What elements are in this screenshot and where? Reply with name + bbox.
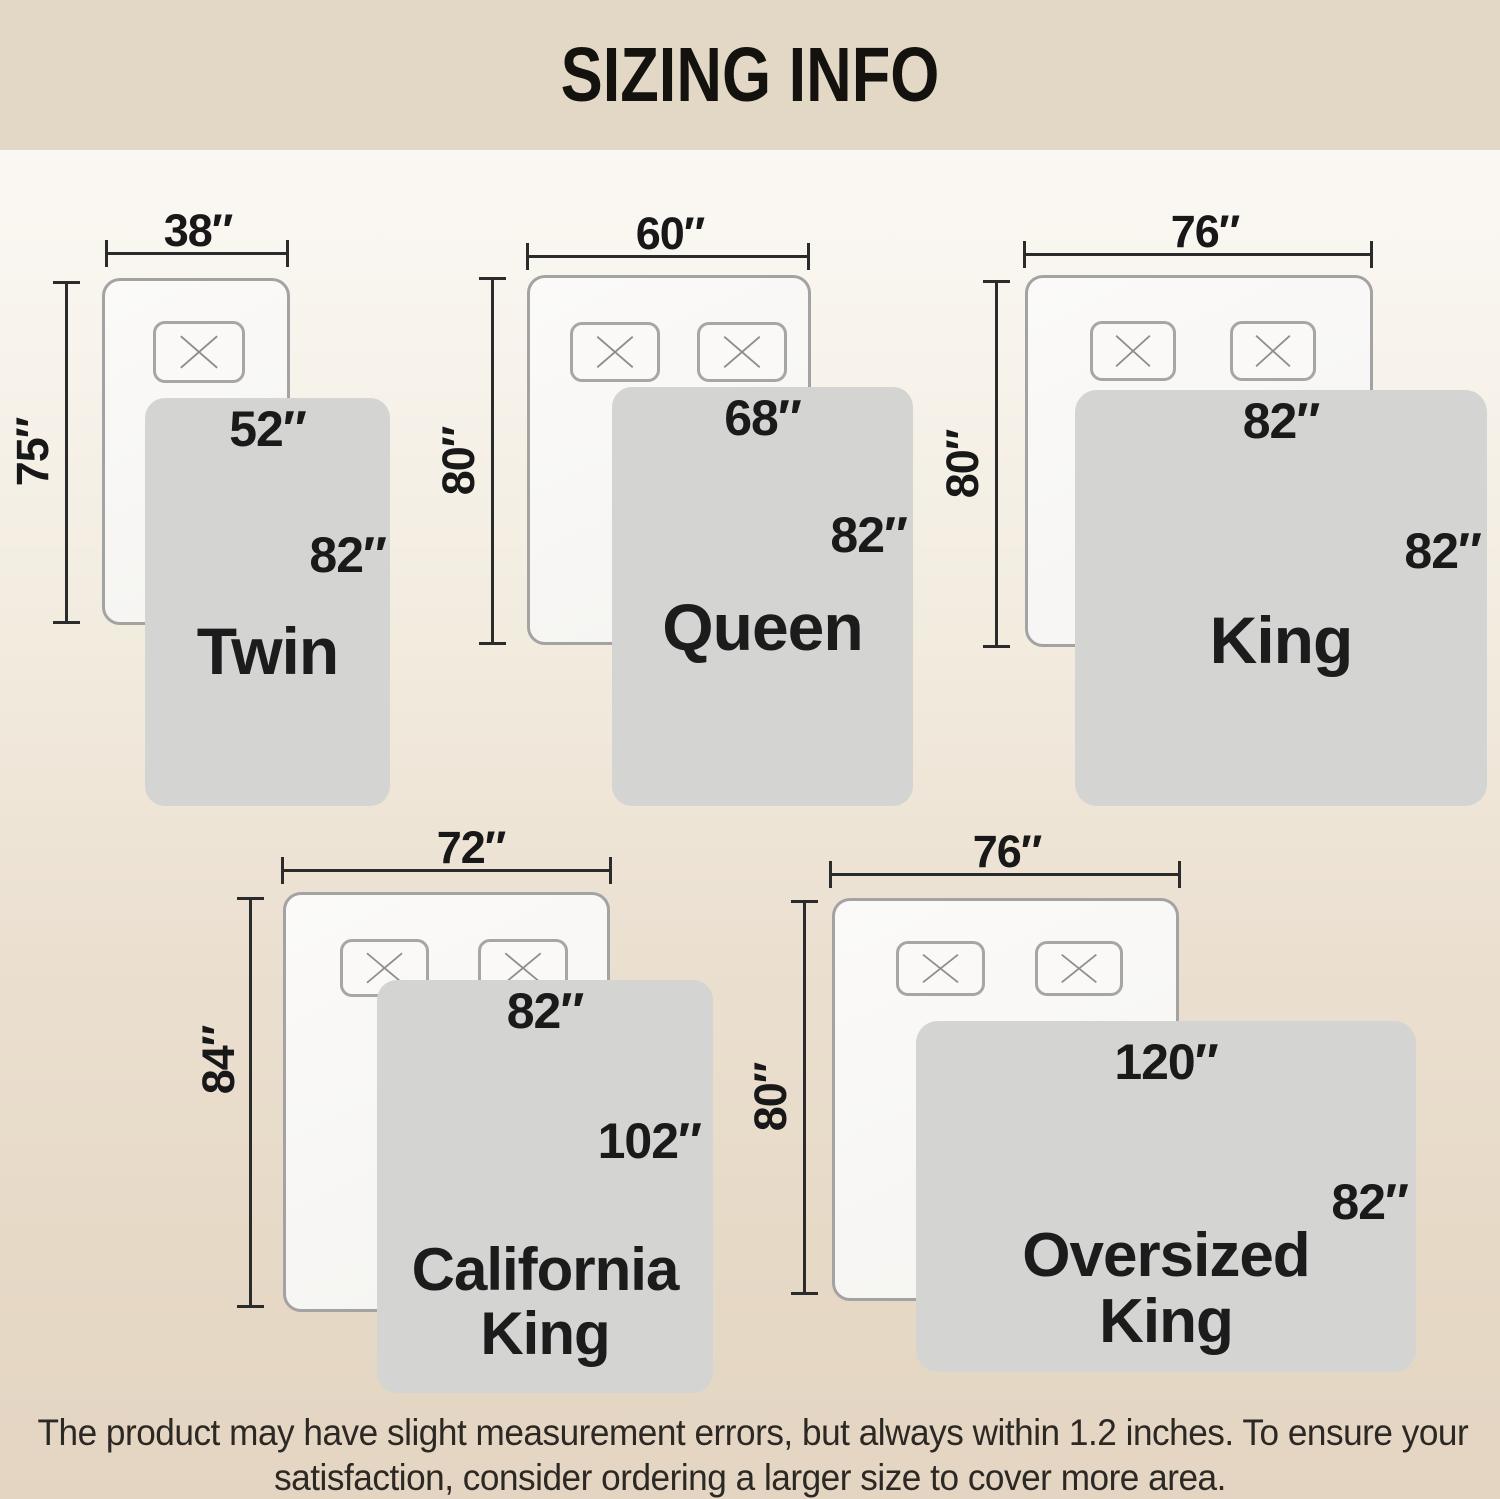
bed-length-label: 84″ — [193, 1026, 245, 1095]
bed-width-dim-line — [829, 873, 1181, 876]
bed-width-label: 72″ — [437, 822, 506, 874]
pillow-x-icon — [899, 944, 982, 993]
blanket-length-label: 82″ — [830, 506, 907, 564]
blanket-width-label: 68″ — [612, 389, 913, 447]
blanket-width-label: 82″ — [1075, 392, 1487, 450]
bed-length-label: 80″ — [937, 430, 989, 499]
bed-width-label: 60″ — [636, 208, 705, 260]
pillow-x-icon — [700, 325, 784, 379]
pillow — [1230, 321, 1316, 381]
bed-length-dim-line — [995, 280, 998, 648]
blanket: 52″ 82″ Twin — [145, 398, 390, 806]
pillow — [697, 322, 787, 382]
blanket: 82″ 82″ King — [1075, 390, 1487, 806]
bed-width-label: 38″ — [164, 205, 233, 257]
header: SIZING INFO — [0, 0, 1500, 150]
blanket: 120″ 82″ Oversized King — [916, 1021, 1416, 1372]
page-title: SIZING INFO — [561, 31, 940, 120]
blanket-length-label: 82″ — [309, 526, 386, 584]
disclaimer-line-2: satisfaction, consider ordering a larger… — [38, 1455, 1463, 1499]
pillow-x-icon — [156, 324, 242, 380]
size-name-label: King — [1075, 605, 1487, 676]
bed-width-label: 76″ — [1171, 206, 1240, 258]
pillow-x-icon — [1233, 324, 1313, 378]
pillow — [570, 322, 660, 382]
size-name-label: Oversized King — [916, 1223, 1416, 1356]
pillow-x-icon — [1093, 324, 1173, 378]
blanket-width-label: 82″ — [377, 982, 713, 1040]
bed-length-label: 80″ — [433, 427, 485, 496]
bed-length-label: 80″ — [745, 1063, 797, 1132]
bed-length-dim-line — [491, 277, 494, 645]
blanket-width-label: 52″ — [145, 400, 390, 458]
blanket-width-label: 120″ — [916, 1033, 1416, 1091]
bed-length-dim-line — [249, 897, 252, 1308]
pillow — [1090, 321, 1176, 381]
size-name-label: Twin — [145, 616, 390, 687]
size-name-label: Queen — [612, 592, 913, 663]
bed-length-dim-line — [65, 281, 68, 624]
bed-width-dim-line — [281, 869, 612, 872]
disclaimer: The product may have slight measurement … — [0, 1410, 1500, 1499]
pillow — [1035, 941, 1123, 996]
pillow-x-icon — [573, 325, 657, 379]
pillow-x-icon — [1038, 944, 1120, 993]
blanket-length-label: 82″ — [1404, 522, 1481, 580]
pillow — [896, 941, 985, 996]
blanket: 68″ 82″ Queen — [612, 387, 913, 806]
sizing-infographic: SIZING INFO 38″ 75″ 52″ 82″ Twin 60″ 80″ — [0, 0, 1500, 1499]
bed-length-label: 75″ — [7, 418, 59, 487]
bed-width-label: 76″ — [973, 826, 1042, 878]
bed-length-dim-line — [803, 900, 806, 1295]
size-name-label: California King — [377, 1238, 713, 1366]
bed-width-dim-line — [105, 252, 289, 255]
pillow — [153, 321, 245, 383]
blanket: 82″ 102″ California King — [377, 980, 713, 1393]
bed-width-dim-line — [1023, 253, 1373, 256]
bed-width-dim-line — [526, 255, 810, 258]
blanket-length-label: 102″ — [598, 1112, 701, 1170]
disclaimer-line-1: The product may have slight measurement … — [38, 1410, 1463, 1455]
